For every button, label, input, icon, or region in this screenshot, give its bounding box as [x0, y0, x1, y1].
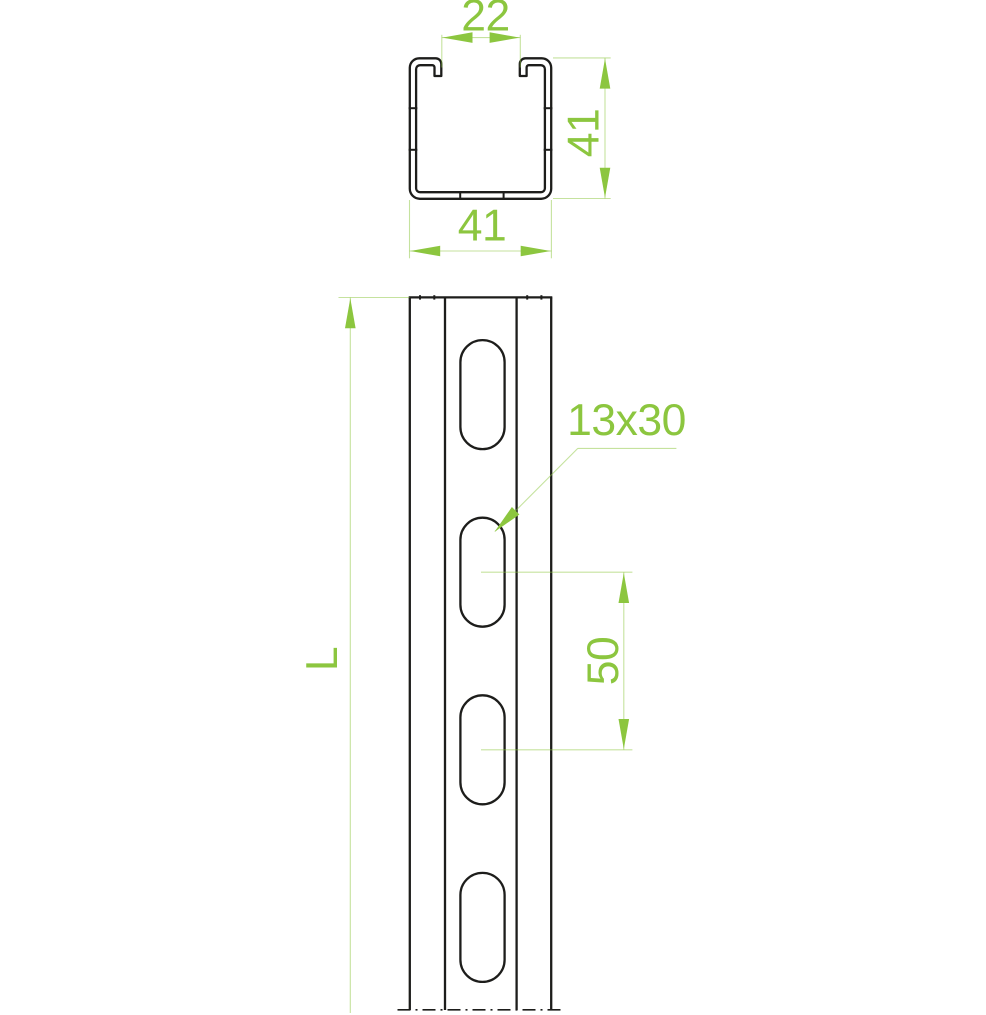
svg-text:13x30: 13x30 [567, 396, 686, 445]
svg-text:41: 41 [458, 202, 507, 251]
svg-text:22: 22 [461, 0, 510, 41]
svg-text:50: 50 [579, 637, 628, 686]
svg-text:41: 41 [560, 109, 609, 158]
svg-text:L: L [298, 647, 347, 671]
